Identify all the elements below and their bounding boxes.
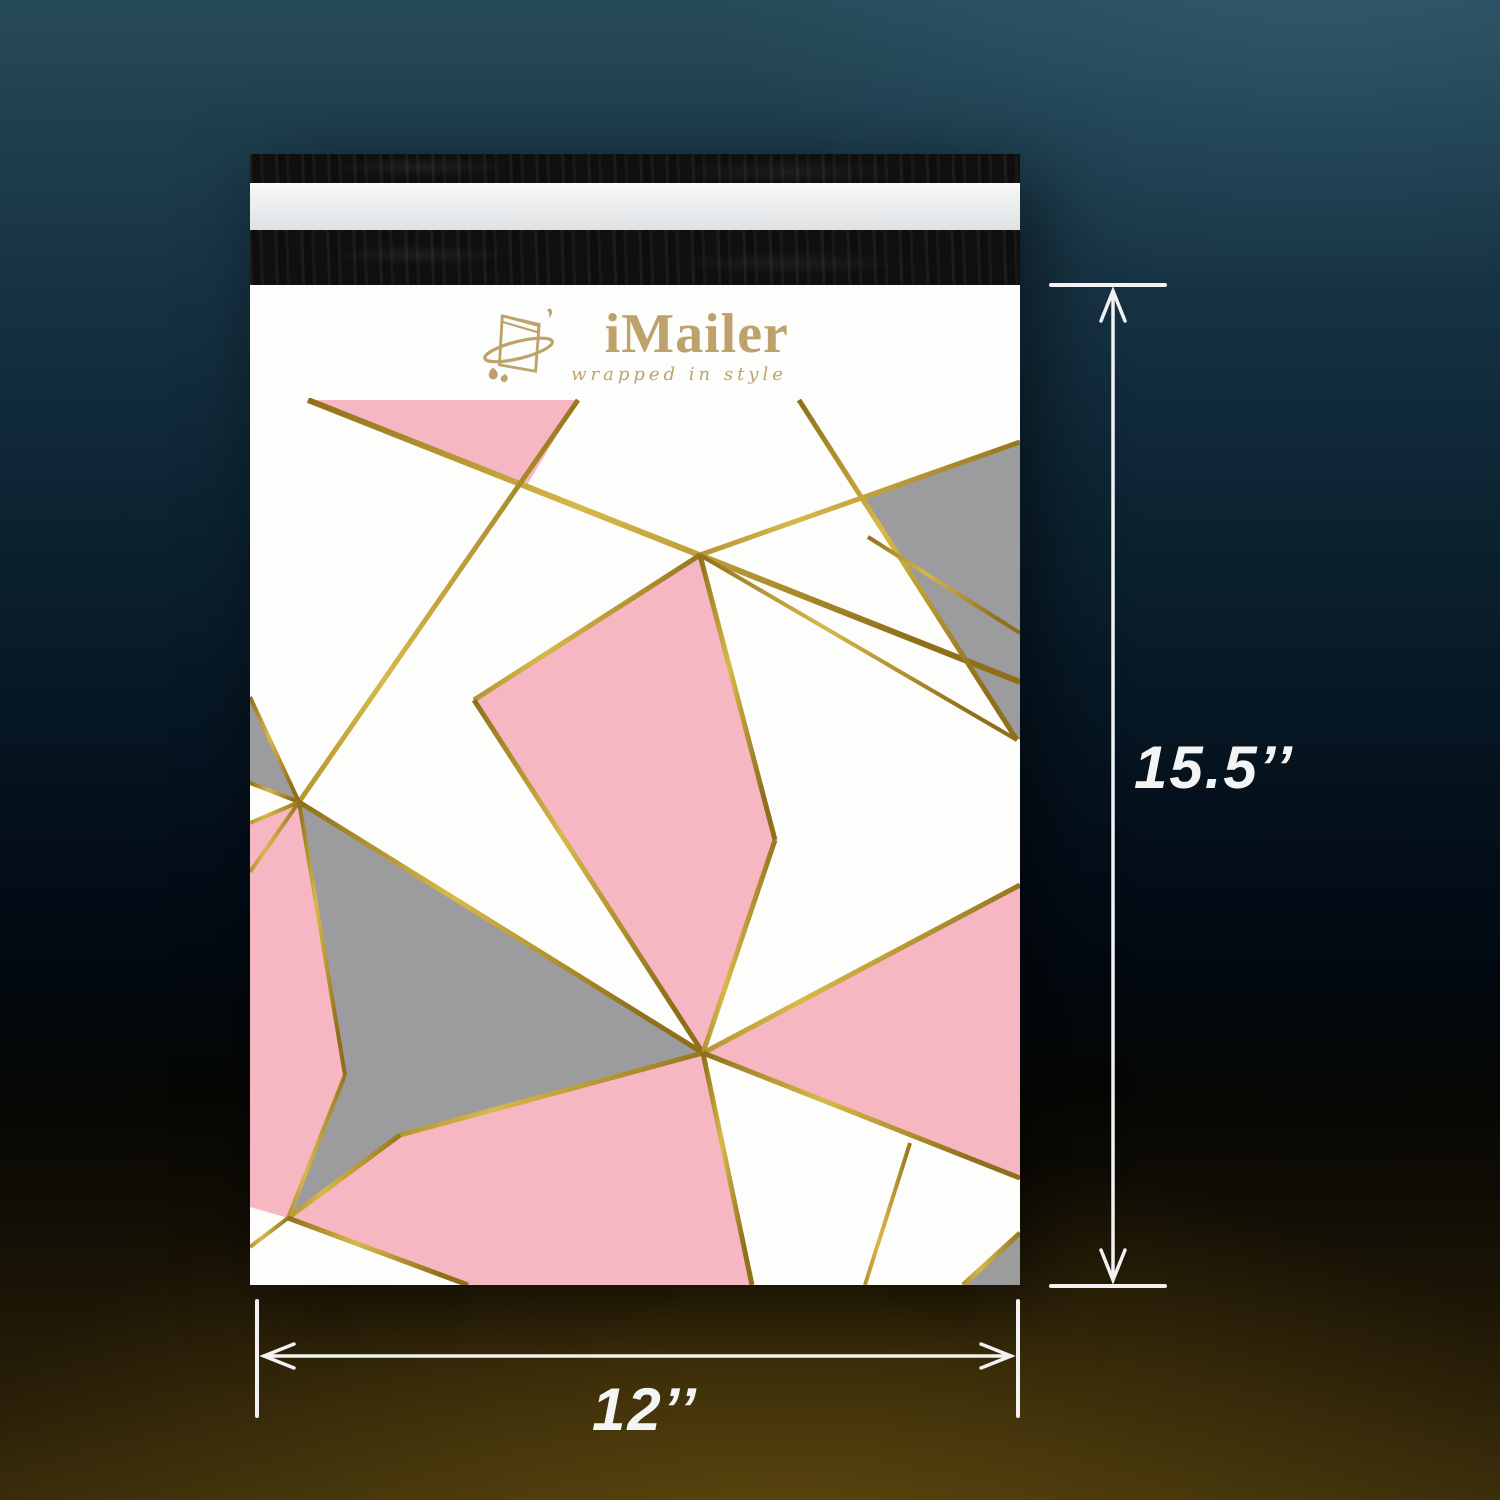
flap-black-strip: [250, 230, 1020, 285]
envelope-body: iMailer wrapped in style: [250, 285, 1020, 1285]
imailer-logo: iMailer wrapped in style: [250, 295, 1020, 395]
logo-text: iMailer wrapped in style: [571, 306, 789, 385]
height-dimension-label: 15.5’’: [1134, 738, 1294, 798]
imailer-book-swoosh-icon: [481, 299, 559, 391]
top-pink-triangle: [308, 400, 578, 485]
release-liner-strip: [250, 183, 1020, 230]
right-pink-triangle: [703, 885, 1020, 1178]
adhesive-flap-strip: [250, 154, 1020, 183]
poly-mailer: iMailer wrapped in style: [250, 154, 1020, 1285]
product-image: iMailer wrapped in style 15.5’’ 12’’: [0, 0, 1500, 1500]
brand-tagline: wrapped in style: [571, 364, 787, 385]
brand-name: iMailer: [605, 306, 789, 362]
width-dimension-label: 12’’: [592, 1380, 698, 1440]
mailer-pattern-svg: [250, 285, 1020, 1285]
